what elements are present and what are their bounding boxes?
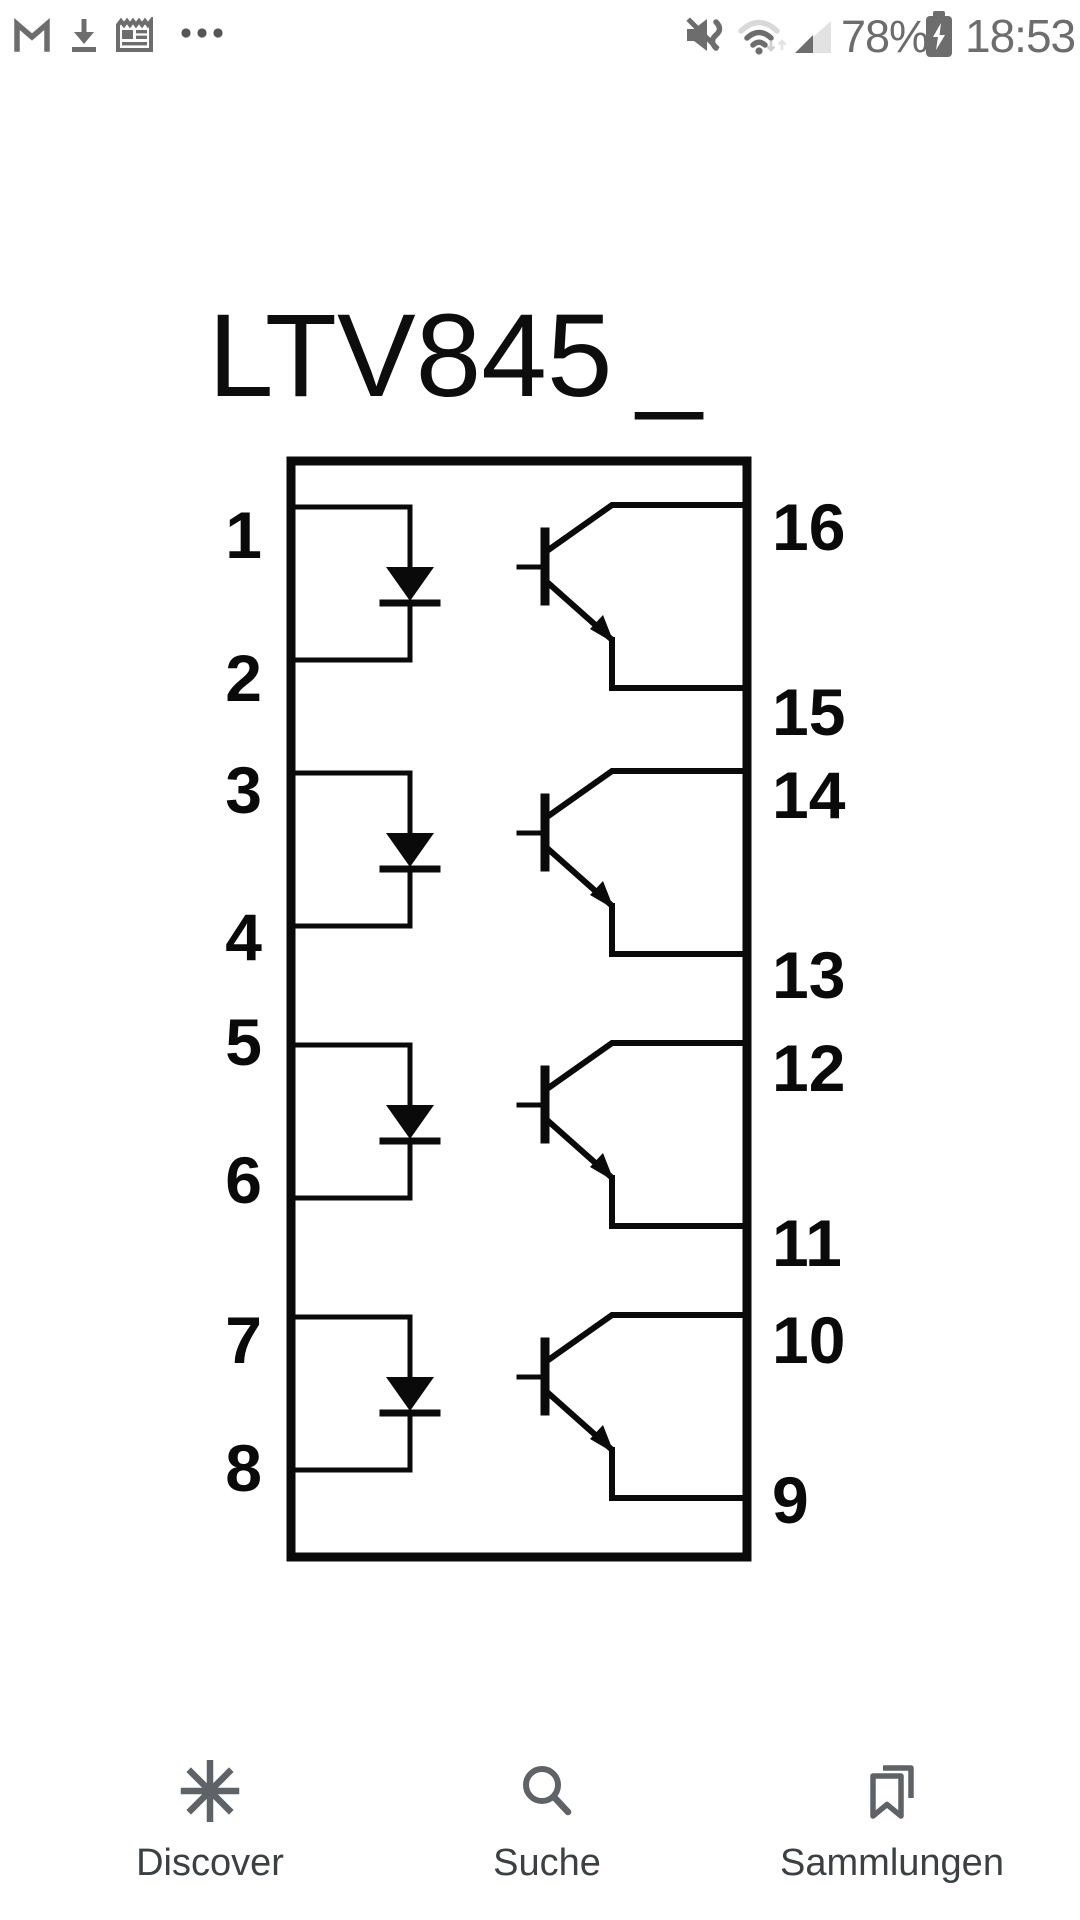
collections-bookmark-icon — [861, 1760, 923, 1822]
page-title: LTV845_ — [208, 297, 702, 415]
pin-label-1: 1 — [225, 498, 262, 572]
status-clock: 18:53 — [965, 13, 1075, 59]
pin-label-5: 5 — [225, 1005, 262, 1079]
nav-label-discover: Discover — [136, 1844, 284, 1882]
wifi-icon — [738, 17, 790, 57]
pin-label-11: 11 — [772, 1206, 842, 1280]
cell-signal-icon — [793, 19, 833, 55]
pin-label-4: 4 — [225, 900, 262, 974]
part-number: LTV845 — [208, 290, 613, 422]
ic-body-outline — [291, 461, 747, 1557]
discover-asterisk-icon — [179, 1760, 241, 1822]
pin-label-14: 14 — [772, 758, 846, 832]
nav-label-collections: Sammlungen — [780, 1844, 1004, 1882]
optocoupler-schematic: 1 2 3 4 5 6 7 8 16 15 14 13 12 11 10 9 — [0, 415, 1080, 1665]
battery-charging-icon — [924, 11, 954, 57]
pin-label-15: 15 — [772, 675, 845, 749]
mute-vibrate-icon — [685, 15, 731, 55]
pin-label-7: 7 — [225, 1303, 262, 1377]
phone-screen: 78% 18:53 LTV845_ — [0, 0, 1080, 1920]
pin-label-2: 2 — [225, 641, 262, 715]
viewed-image[interactable]: LTV845_ — [0, 64, 1080, 1704]
pin-label-16: 16 — [772, 490, 845, 564]
gmail-icon — [13, 17, 51, 53]
battery-percent: 78% — [841, 14, 928, 59]
more-notifications-icon — [180, 26, 224, 40]
opto-channel-3 — [294, 1043, 745, 1226]
nav-item-search[interactable]: Suche — [397, 1760, 697, 1882]
pin-label-9: 9 — [772, 1463, 809, 1537]
part-number-suffix: _ — [637, 290, 703, 422]
opto-channel-1 — [294, 505, 745, 688]
nav-label-search: Suche — [493, 1844, 601, 1882]
search-icon — [516, 1760, 578, 1822]
pin-label-12: 12 — [772, 1031, 845, 1105]
nav-item-collections[interactable]: Sammlungen — [742, 1760, 1042, 1882]
status-bar: 78% 18:53 — [0, 0, 1080, 64]
download-icon — [69, 18, 99, 53]
bottom-nav: Discover Suche Sammlungen — [0, 1705, 1080, 1920]
nav-item-discover[interactable]: Discover — [60, 1760, 360, 1882]
pin-label-3: 3 — [225, 753, 262, 827]
pin-label-6: 6 — [225, 1143, 262, 1217]
pin-label-10: 10 — [772, 1303, 845, 1377]
pin-label-13: 13 — [772, 938, 845, 1012]
news-icon — [116, 17, 154, 54]
pin-label-8: 8 — [225, 1431, 262, 1505]
opto-channel-4 — [294, 1315, 745, 1498]
opto-channel-2 — [294, 771, 745, 954]
schematic-svg: 1 2 3 4 5 6 7 8 16 15 14 13 12 11 10 9 — [0, 415, 1080, 1665]
